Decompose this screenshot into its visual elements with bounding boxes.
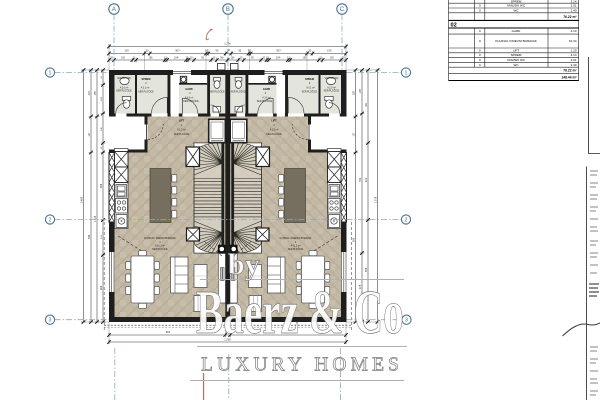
svg-text:76.22 m²: 76.22 m² <box>563 69 577 73</box>
svg-text:KUHINJA I DNEVNI BORAVAK: KUHINJA I DNEVNI BORAVAK <box>144 237 176 240</box>
svg-text:KER.PLOČICE: KER.PLOČICE <box>324 90 340 93</box>
svg-text:02: 02 <box>451 23 457 29</box>
svg-text:KER.PLOČICE: KER.PLOČICE <box>302 90 318 93</box>
svg-text:KER.PLOČICE: KER.PLOČICE <box>231 91 247 94</box>
svg-text:VANJSKI WC: VANJSKI WC <box>507 58 526 62</box>
svg-text:A 3.4 m²: A 3.4 m² <box>262 97 271 100</box>
svg-text:GARD: GARD <box>263 88 271 91</box>
svg-text:LUXURY HOMES: LUXURY HOMES <box>201 355 404 376</box>
svg-text:A 1.2 m²: A 1.2 m² <box>270 129 279 132</box>
svg-text:218¹: 218¹ <box>88 90 91 95</box>
svg-text:193: 193 <box>327 49 332 53</box>
svg-text:368: 368 <box>99 285 103 290</box>
svg-text:4.13: 4.13 <box>571 29 577 33</box>
svg-text:2: 2 <box>49 217 52 223</box>
svg-text:KER.PLOČICE: KER.PLOČICE <box>209 91 225 94</box>
svg-text:A 2.0 m²: A 2.0 m² <box>327 87 336 90</box>
svg-text:12⁵: 12⁵ <box>164 55 168 59</box>
svg-text:2.01: 2.01 <box>571 4 577 8</box>
svg-text:946: 946 <box>87 234 91 239</box>
svg-text:A 3.1 m²: A 3.1 m² <box>141 87 150 90</box>
svg-text:3: 3 <box>49 318 52 324</box>
svg-text:B: B <box>226 6 230 13</box>
svg-text:KER.PLOČICE: KER.PLOČICE <box>152 248 168 251</box>
svg-text:12⁵: 12⁵ <box>205 48 209 52</box>
svg-text:VANJSKI WC: VANJSKI WC <box>507 4 526 8</box>
svg-text:KUHINJA I DNEVNI BORAVAK: KUHINJA I DNEVNI BORAVAK <box>280 237 312 240</box>
svg-text:KER.PLOČICE: KER.PLOČICE <box>288 248 304 251</box>
svg-text:100: 100 <box>330 56 335 59</box>
svg-text:A 1.2 m²: A 1.2 m² <box>177 129 186 132</box>
svg-text:58⁵: 58⁵ <box>231 55 235 59</box>
svg-text:307⁵: 307⁵ <box>175 49 180 53</box>
svg-text:A 61.3 m²: A 61.3 m² <box>155 244 165 247</box>
svg-text:3.14: 3.14 <box>571 53 577 57</box>
svg-text:76.22 m²: 76.22 m² <box>563 15 577 19</box>
svg-text:KER.PLOČICE: KER.PLOČICE <box>183 100 199 103</box>
svg-text:1: 1 <box>49 70 52 76</box>
svg-text:LIFT: LIFT <box>179 120 185 123</box>
svg-text:104⁵: 104⁵ <box>174 55 179 59</box>
svg-text:1.378: 1.378 <box>373 196 377 203</box>
svg-text:VANJSKI WC: VANJSKI WC <box>325 77 339 80</box>
svg-text:A 3.1 m²: A 3.1 m² <box>306 87 315 90</box>
svg-text:KER.PLOČICE: KER.PLOČICE <box>174 133 190 136</box>
svg-text:KER.PLOČICE: KER.PLOČICE <box>266 133 282 136</box>
svg-text:12⁵: 12⁵ <box>248 48 252 52</box>
svg-text:VANJSKI WC: VANJSKI WC <box>117 77 131 80</box>
svg-text:KER.PLOČICE: KER.PLOČICE <box>138 90 154 93</box>
svg-text:926: 926 <box>351 237 355 242</box>
svg-text:307⁵: 307⁵ <box>276 49 281 53</box>
svg-text:421: 421 <box>364 177 368 182</box>
svg-text:LIFT: LIFT <box>513 48 519 52</box>
svg-text:156: 156 <box>149 56 154 59</box>
svg-text:58⁵: 58⁵ <box>220 55 224 59</box>
svg-text:2.40: 2.40 <box>571 9 577 13</box>
svg-text:GARD: GARD <box>512 29 522 33</box>
svg-text:GARD: GARD <box>185 88 193 91</box>
svg-text:A 2.0 m²: A 2.0 m² <box>120 87 129 90</box>
svg-text:WC: WC <box>514 9 520 13</box>
svg-text:Baerz & Co: Baerz & Co <box>196 279 404 347</box>
svg-text:3: 3 <box>405 318 408 324</box>
svg-text:2: 2 <box>405 217 408 223</box>
svg-text:602: 602 <box>166 330 171 334</box>
svg-text:368: 368 <box>99 183 103 188</box>
svg-text:2.01: 2.01 <box>571 58 577 62</box>
svg-text:2.40: 2.40 <box>571 63 577 67</box>
svg-text:1.482: 1.482 <box>79 196 83 203</box>
svg-text:SPREM: SPREM <box>142 78 151 81</box>
svg-text:1.20: 1.20 <box>571 48 577 52</box>
svg-text:100: 100 <box>121 56 126 59</box>
svg-text:by: by <box>228 248 260 281</box>
svg-text:KER.PLOČICE: KER.PLOČICE <box>116 90 132 93</box>
svg-text:12⁵: 12⁵ <box>287 55 291 59</box>
svg-text:C: C <box>340 6 345 13</box>
svg-text:61.34: 61.34 <box>569 39 577 43</box>
svg-text:104⁵: 104⁵ <box>276 55 281 59</box>
svg-text:WC: WC <box>514 63 520 67</box>
svg-text:12⁵: 12⁵ <box>266 55 270 59</box>
svg-text:SPREM: SPREM <box>511 53 522 57</box>
svg-text:A 3.4 m²: A 3.4 m² <box>185 97 194 100</box>
svg-text:1.116: 1.116 <box>93 215 97 222</box>
svg-text:148.44 m²: 148.44 m² <box>561 76 577 80</box>
svg-text:156: 156 <box>303 56 308 59</box>
svg-text:558: 558 <box>364 267 368 272</box>
svg-text:LIFT: LIFT <box>271 120 277 123</box>
svg-text:KUHINJA I DNEVNI BORAVAK: KUHINJA I DNEVNI BORAVAK <box>495 39 536 43</box>
svg-text:SPREM: SPREM <box>305 78 314 81</box>
svg-text:763: 763 <box>358 177 362 182</box>
svg-text:1: 1 <box>405 70 408 76</box>
svg-text:193: 193 <box>124 49 129 53</box>
svg-text:KER.PLOČICE: KER.PLOČICE <box>257 100 273 103</box>
svg-text:12⁵: 12⁵ <box>185 55 189 59</box>
svg-text:A 61.3 m²: A 61.3 m² <box>291 244 301 247</box>
